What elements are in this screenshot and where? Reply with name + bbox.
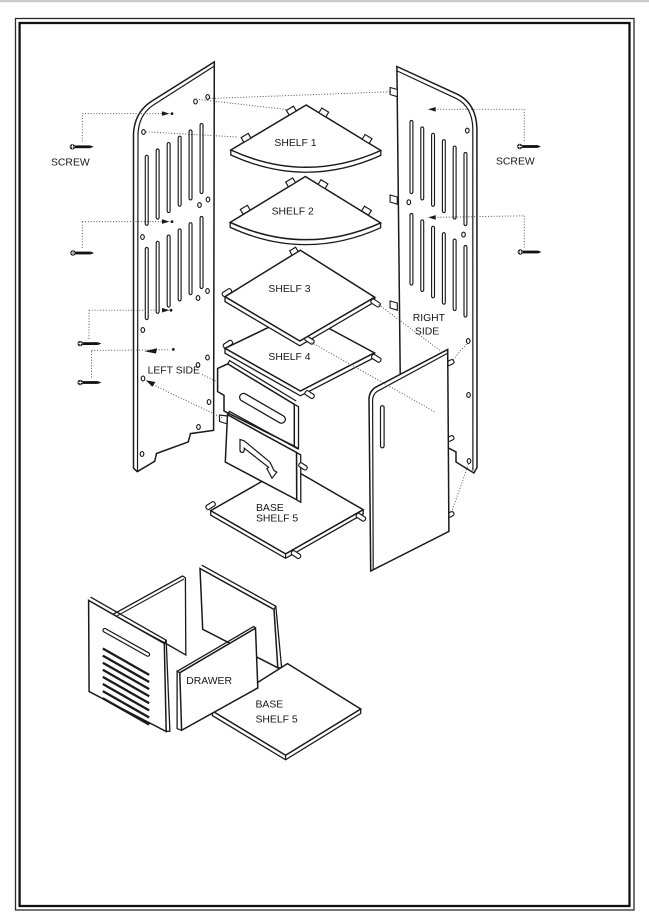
svg-text:SHELF 5: SHELF 5 [256, 513, 298, 524]
svg-text:LEFT SIDE: LEFT SIDE [148, 365, 200, 376]
svg-text:SHELF 3: SHELF 3 [268, 284, 310, 295]
svg-text:BASE: BASE [256, 700, 284, 711]
svg-text:SCREW: SCREW [496, 157, 535, 168]
svg-text:SHELF 2: SHELF 2 [272, 206, 314, 217]
svg-text:RIGHT: RIGHT [413, 313, 446, 324]
svg-text:SHELF 5: SHELF 5 [256, 714, 298, 725]
svg-text:SHELF 1: SHELF 1 [274, 138, 316, 149]
svg-text:SHELF 4: SHELF 4 [268, 352, 310, 363]
svg-text:DRAWER: DRAWER [186, 676, 232, 687]
svg-text:BASE: BASE [256, 503, 284, 514]
svg-text:SCREW: SCREW [51, 157, 90, 168]
svg-text:SIDE: SIDE [415, 326, 439, 337]
